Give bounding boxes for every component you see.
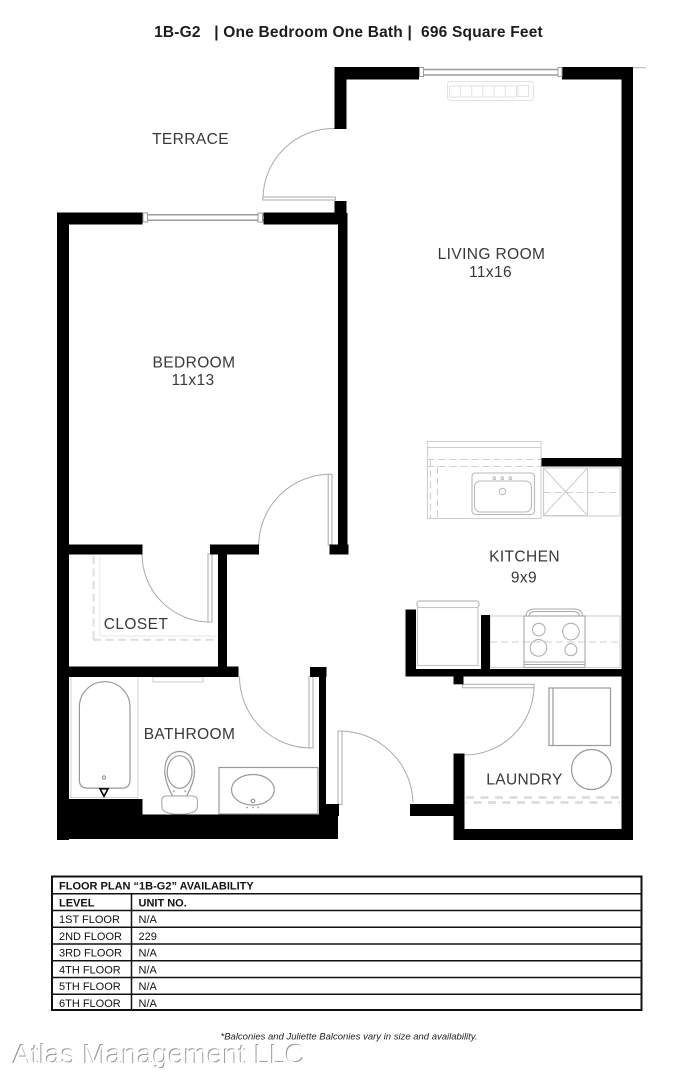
svg-text:LIVING ROOM: LIVING ROOM xyxy=(438,246,546,263)
svg-text:KITCHEN: KITCHEN xyxy=(489,549,560,566)
svg-text:LEVEL: LEVEL xyxy=(59,898,95,910)
svg-text:11x13: 11x13 xyxy=(171,372,214,389)
svg-text:N/A: N/A xyxy=(139,998,158,1010)
svg-text:BATHROOM: BATHROOM xyxy=(144,726,236,743)
svg-text:4TH FLOOR: 4TH FLOOR xyxy=(59,964,121,976)
svg-text:229: 229 xyxy=(139,931,157,943)
svg-text:5TH FLOOR: 5TH FLOOR xyxy=(59,981,121,993)
svg-text:Atlas Management LLC: Atlas Management LLC xyxy=(13,1039,306,1070)
svg-text:N/A: N/A xyxy=(139,948,158,960)
svg-text:9x9: 9x9 xyxy=(511,570,537,587)
svg-text:UNIT NO.: UNIT NO. xyxy=(139,898,187,910)
svg-text:FLOOR PLAN “1B-G2” AVAILABILIT: FLOOR PLAN “1B-G2” AVAILABILITY xyxy=(59,881,254,893)
svg-text:CLOSET: CLOSET xyxy=(104,616,169,633)
svg-text:TERRACE: TERRACE xyxy=(152,131,229,148)
svg-text:N/A: N/A xyxy=(139,964,158,976)
svg-text:LAUNDRY: LAUNDRY xyxy=(486,772,563,789)
svg-text:6TH FLOOR: 6TH FLOOR xyxy=(59,998,121,1010)
svg-text:N/A: N/A xyxy=(139,914,158,926)
svg-text:1B-G2 | One Bedroom One Bath: 1B-G2 | One Bedroom One Bath | 696 Squar… xyxy=(154,24,543,41)
svg-text:11x16: 11x16 xyxy=(469,264,512,281)
svg-text:3RD FLOOR: 3RD FLOOR xyxy=(59,948,122,960)
svg-text:2ND FLOOR: 2ND FLOOR xyxy=(59,931,122,943)
svg-text:1ST FLOOR: 1ST FLOOR xyxy=(59,914,120,926)
svg-text:N/A: N/A xyxy=(139,981,158,993)
svg-text:BEDROOM: BEDROOM xyxy=(153,355,236,372)
